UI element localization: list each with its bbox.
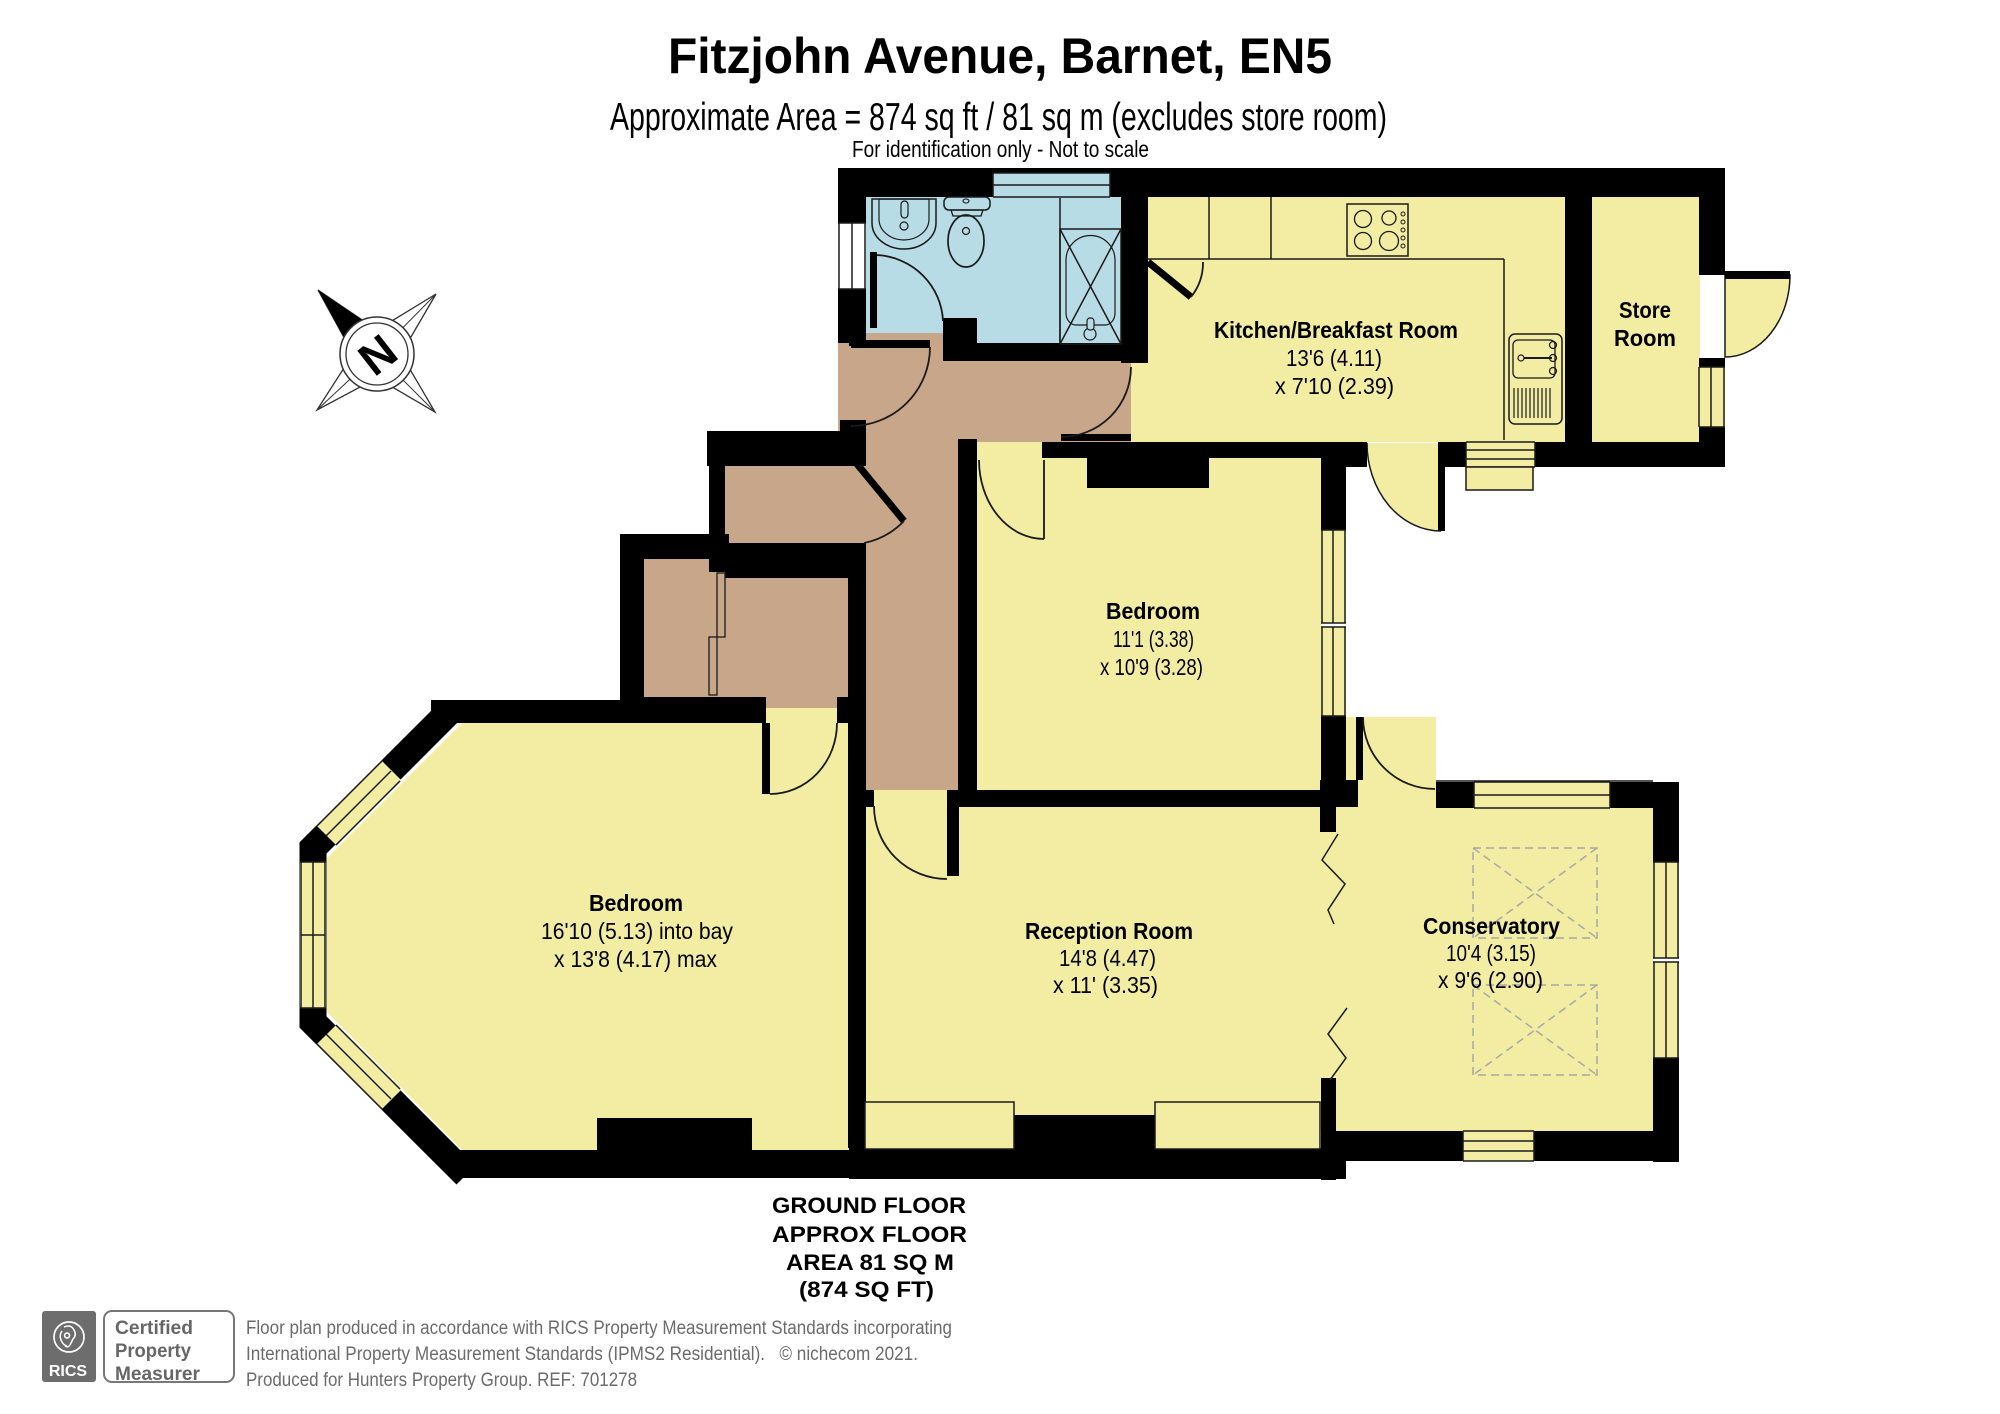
svg-text:Produced for Hunters Property: Produced for Hunters Property Group. REF… <box>246 1370 637 1391</box>
svg-text:Reception Room: Reception Room <box>1025 918 1193 944</box>
svg-text:x 13'8 (4.17) max: x 13'8 (4.17) max <box>554 946 717 972</box>
svg-text:RICS: RICS <box>49 1363 88 1380</box>
svg-text:Certified: Certified <box>115 1318 193 1339</box>
svg-text:Bedroom: Bedroom <box>1106 598 1200 624</box>
svg-text:11'1 (3.38): 11'1 (3.38) <box>1113 626 1194 652</box>
svg-text:Kitchen/Breakfast Room: Kitchen/Breakfast Room <box>1214 317 1458 343</box>
svg-text:x 10'9 (3.28): x 10'9 (3.28) <box>1100 654 1203 680</box>
svg-text:AREA 81 SQ M: AREA 81 SQ M <box>786 1250 954 1275</box>
svg-text:Measurer: Measurer <box>115 1364 201 1385</box>
svg-text:Fitzjohn Avenue, Barnet, EN5: Fitzjohn Avenue, Barnet, EN5 <box>668 28 1332 84</box>
svg-text:x 9'6 (2.90): x 9'6 (2.90) <box>1438 967 1543 993</box>
svg-text:10'4 (3.15): 10'4 (3.15) <box>1446 940 1536 966</box>
svg-text:APPROX FLOOR: APPROX FLOOR <box>772 1222 967 1247</box>
svg-text:16'10 (5.13) into bay: 16'10 (5.13) into bay <box>541 918 733 944</box>
svg-text:International Property Measure: International Property Measurement Stand… <box>246 1344 918 1365</box>
svg-text:Approximate Area = 874 sq ft /: Approximate Area = 874 sq ft / 81 sq m (… <box>610 96 1387 139</box>
svg-text:x 7'10 (2.39): x 7'10 (2.39) <box>1275 373 1394 399</box>
svg-text:Bedroom: Bedroom <box>589 890 683 916</box>
svg-text:Property: Property <box>115 1341 191 1362</box>
svg-text:13'6 (4.11): 13'6 (4.11) <box>1286 345 1382 371</box>
svg-text:(874 SQ FT): (874 SQ FT) <box>799 1277 934 1302</box>
svg-text:Conservatory: Conservatory <box>1423 913 1560 939</box>
svg-text:14'8 (4.47): 14'8 (4.47) <box>1059 945 1156 971</box>
svg-text:Store: Store <box>1619 297 1671 323</box>
svg-text:For identification only - Not: For identification only - Not to scale <box>852 136 1149 162</box>
svg-text:x 11' (3.35): x 11' (3.35) <box>1053 972 1158 998</box>
svg-text:Floor plan produced in accorda: Floor plan produced in accordance with R… <box>246 1318 952 1339</box>
svg-text:GROUND FLOOR: GROUND FLOOR <box>772 1193 966 1218</box>
svg-text:Room: Room <box>1614 325 1676 351</box>
